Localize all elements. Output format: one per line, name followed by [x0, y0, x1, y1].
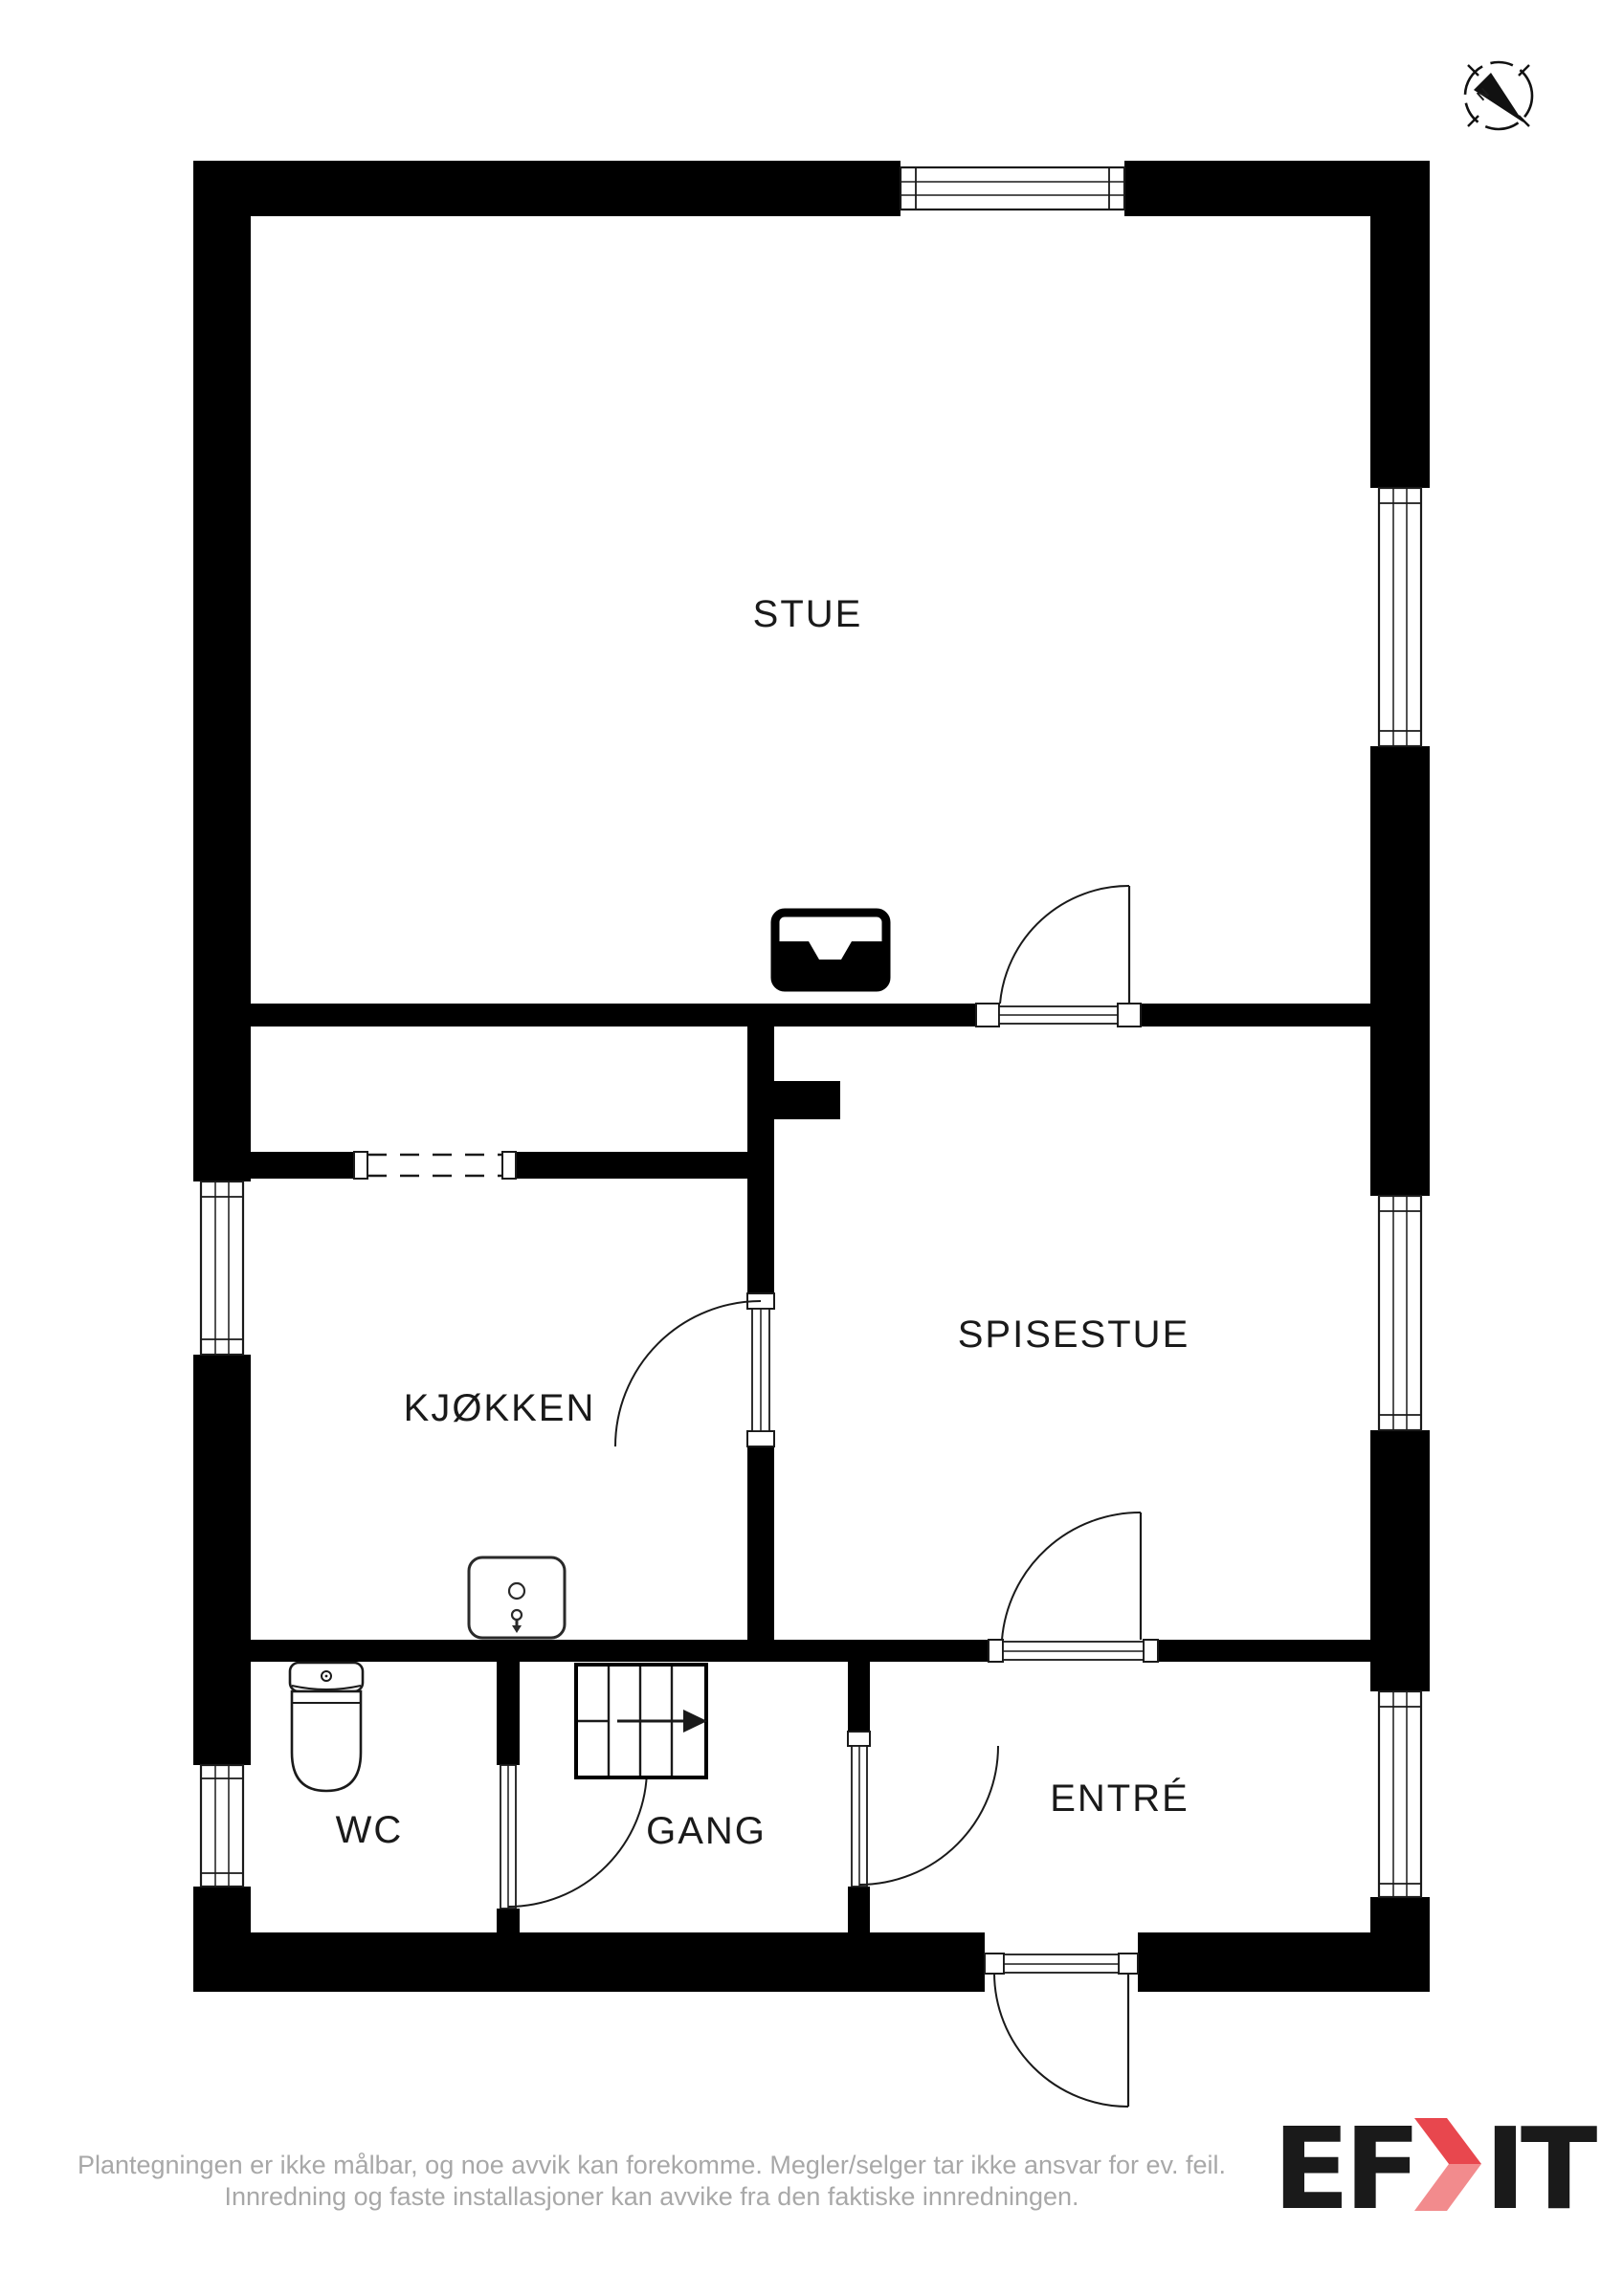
wall-segment [251, 1640, 989, 1662]
wall-segment [193, 161, 900, 216]
windows [201, 167, 1421, 1897]
wall-segment [497, 1909, 520, 1932]
room-label-kjokken: KJØKKEN [404, 1387, 596, 1429]
door-entry-exterior [985, 1954, 1138, 2107]
wall-segment [516, 1152, 747, 1179]
door-swing-arc [859, 1746, 998, 1885]
window-right-stue [1379, 488, 1421, 746]
door-swing-arc [508, 1768, 647, 1907]
wall-segment [193, 161, 251, 1181]
wall-segment [1370, 746, 1430, 1196]
logo-text-right: IT [1484, 2103, 1597, 2235]
door-stue-spisestue [976, 886, 1141, 1027]
room-label-entre: ENTRÉ [1050, 1777, 1189, 1820]
door-swing-arc [994, 1973, 1128, 2107]
wall-segment [251, 1152, 354, 1179]
room-label-stue: STUE [753, 593, 863, 635]
wall-segment [747, 1027, 774, 1293]
compass-icon: N [1465, 62, 1532, 129]
room-label-spisestue: SPISESTUE [958, 1314, 1190, 1356]
opening-jamb [502, 1152, 516, 1179]
door-swing-arc [1000, 886, 1129, 1004]
door-gang-entre [848, 1732, 998, 1887]
floor-plan: N STUE SPISESTUE KJØKKEN WC GANG ENTRÉ P… [0, 0, 1623, 2296]
wall-segment [848, 1887, 870, 1932]
door-spisestue-entre [989, 1512, 1158, 1662]
logo-chevron-lower [1414, 2164, 1481, 2211]
wall-segment [848, 1662, 870, 1732]
room-label-gang: GANG [646, 1810, 767, 1852]
chimney-stub [774, 1081, 840, 1119]
exterior-walls [193, 161, 1430, 1992]
room-label-wc: WC [336, 1809, 404, 1851]
wall-segment [1158, 1640, 1370, 1662]
stairs-icon [576, 1665, 707, 1777]
window-left-wc [201, 1765, 243, 1887]
wall-segment [1370, 1430, 1430, 1691]
opening-jamb [354, 1152, 367, 1179]
disclaimer-line1: Plantegningen er ikke målbar, og noe avv… [78, 2151, 1226, 2179]
wall-segment [251, 1004, 976, 1027]
wall-segment [1370, 161, 1430, 488]
door-swing-arc [615, 1301, 761, 1446]
door-swing-arc [1002, 1512, 1141, 1640]
doors [500, 886, 1158, 2107]
door-wc-gang [500, 1765, 647, 1909]
brand-logo: EF IT [1273, 2103, 1597, 2235]
logo-text-left: EF [1273, 2103, 1415, 2235]
fireplace-icon [775, 913, 886, 987]
window-top [900, 167, 1124, 210]
toilet-icon [290, 1663, 363, 1791]
wall-segment [747, 1446, 774, 1662]
wall-segment [193, 1932, 985, 1992]
interior-walls [251, 1004, 1370, 1932]
window-left-kitchen [201, 1181, 243, 1355]
wall-segment [1138, 1932, 1430, 1992]
window-right-entre [1379, 1691, 1421, 1897]
wall-segment [497, 1662, 520, 1765]
wall-segment [193, 1355, 251, 1765]
window-right-spisestue [1379, 1196, 1421, 1430]
door-kjokken-spisestue [615, 1293, 774, 1446]
disclaimer-line2: Innredning og faste installasjoner kan a… [224, 2182, 1078, 2211]
water-heater-icon [469, 1557, 565, 1638]
dashed-opening [354, 1152, 516, 1179]
disclaimer: Plantegningen er ikke målbar, og noe avv… [78, 2151, 1226, 2211]
wall-segment [1141, 1004, 1370, 1027]
logo-chevron-upper [1414, 2118, 1481, 2164]
